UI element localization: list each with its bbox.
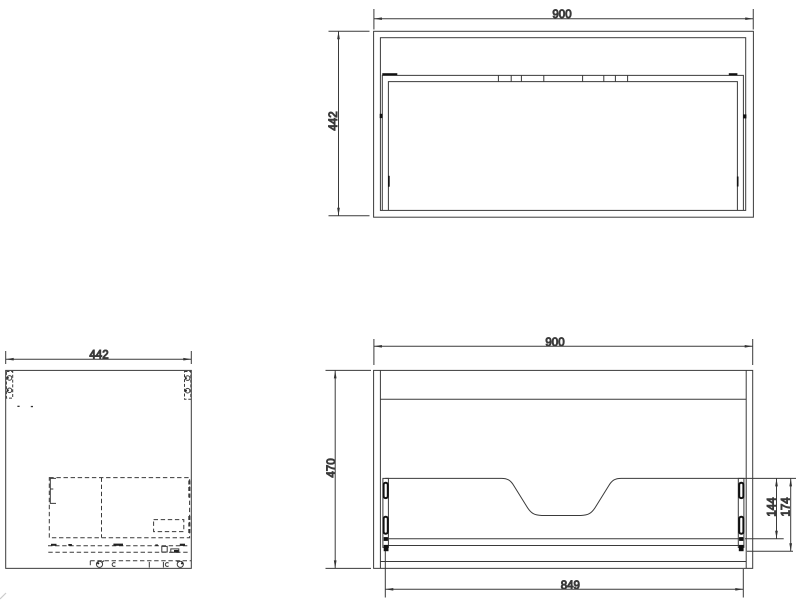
svg-text:442: 442 bbox=[89, 349, 108, 361]
svg-text:174: 174 bbox=[781, 497, 793, 517]
svg-text:144: 144 bbox=[767, 497, 779, 517]
svg-text:470: 470 bbox=[326, 458, 338, 477]
svg-text:442: 442 bbox=[328, 111, 340, 130]
svg-text:849: 849 bbox=[561, 580, 580, 592]
svg-text:900: 900 bbox=[545, 337, 564, 349]
svg-text:900: 900 bbox=[552, 9, 571, 21]
